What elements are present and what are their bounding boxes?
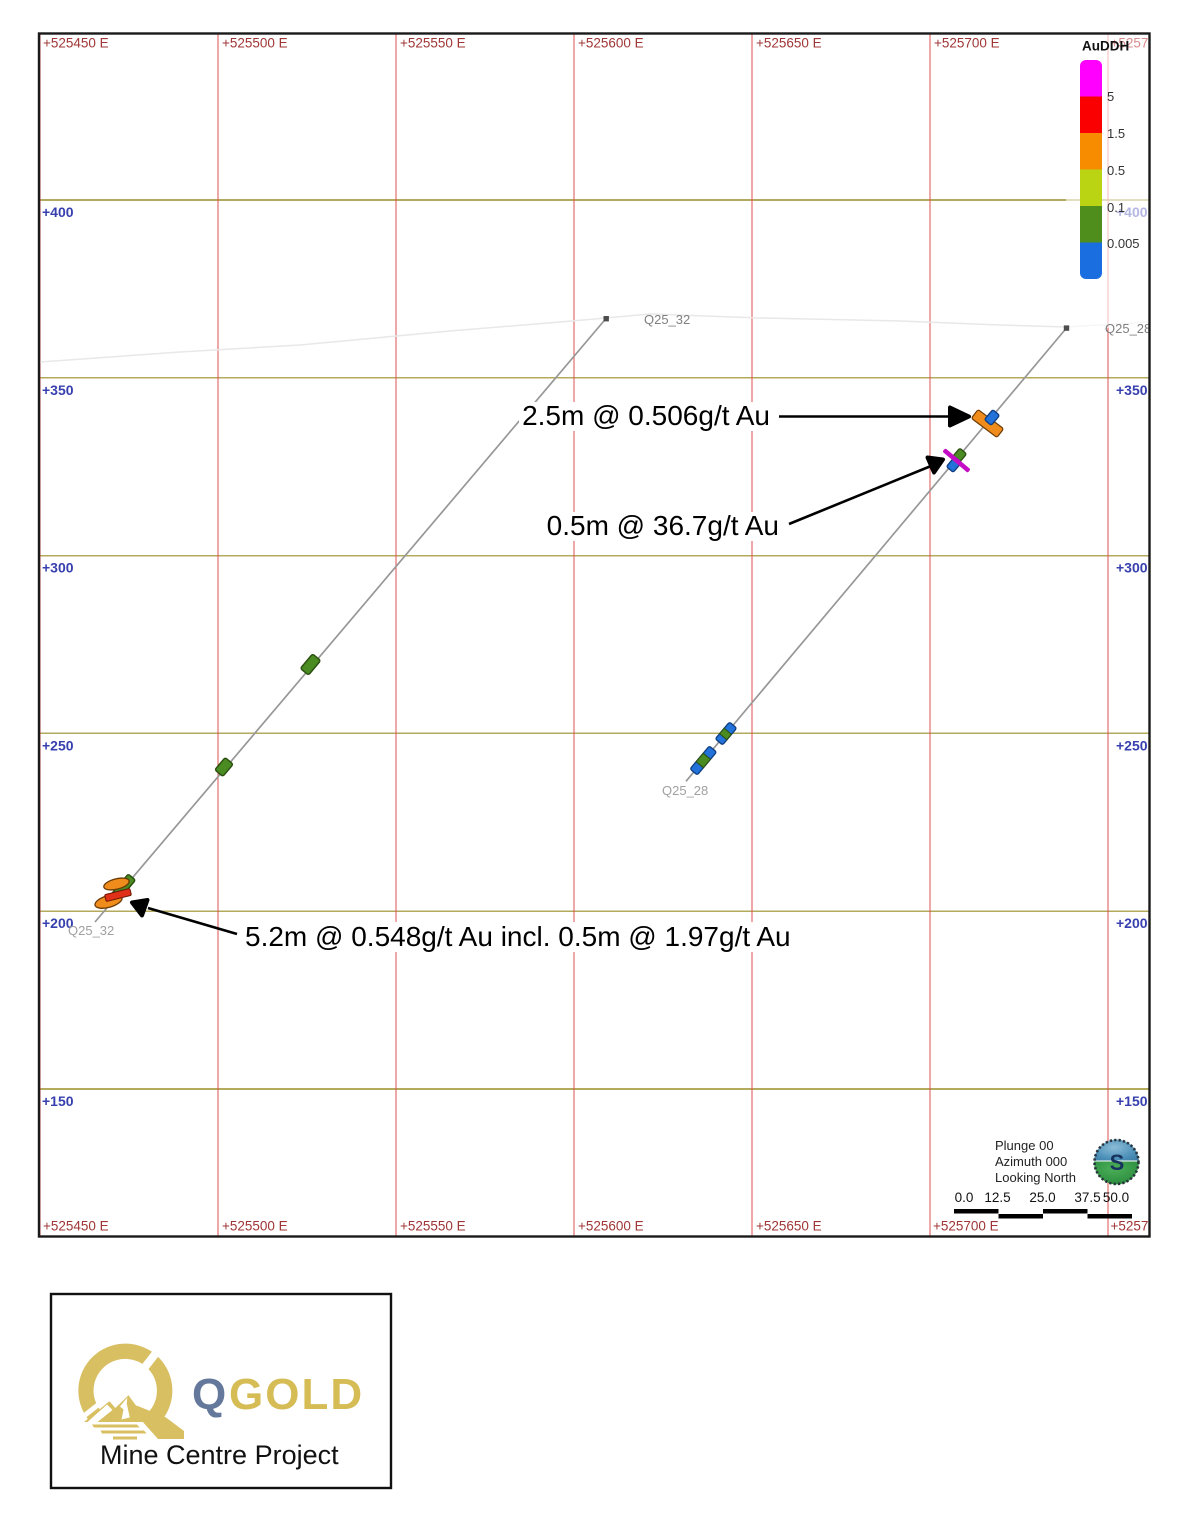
svg-text:Q25_28: Q25_28 xyxy=(662,783,708,798)
svg-text:+525700 E: +525700 E xyxy=(934,36,1000,51)
svg-text:+525650 E: +525650 E xyxy=(756,36,822,51)
svg-text:+300: +300 xyxy=(42,560,74,576)
svg-text:Mine Centre Project: Mine Centre Project xyxy=(100,1440,339,1470)
svg-text:Q: Q xyxy=(192,1370,228,1419)
svg-text:5.2m @ 0.548g/t Au incl. 0.5m: 5.2m @ 0.548g/t Au incl. 0.5m @ 1.97g/t … xyxy=(245,921,791,952)
svg-text:+525500 E: +525500 E xyxy=(222,1219,288,1234)
svg-text:1.5: 1.5 xyxy=(1107,126,1125,141)
svg-text:+150: +150 xyxy=(42,1093,74,1109)
svg-text:5: 5 xyxy=(1107,89,1114,104)
svg-text:0.1: 0.1 xyxy=(1107,200,1125,215)
svg-text:0.005: 0.005 xyxy=(1107,236,1140,251)
svg-text:0.5m @ 36.7g/t Au: 0.5m @ 36.7g/t Au xyxy=(547,510,779,541)
svg-text:Plunge 00: Plunge 00 xyxy=(995,1138,1054,1153)
svg-text:Q25_32: Q25_32 xyxy=(68,923,114,938)
svg-text:GOLD: GOLD xyxy=(229,1370,364,1419)
svg-text:12.5: 12.5 xyxy=(984,1190,1010,1205)
svg-text:+525550 E: +525550 E xyxy=(400,1219,466,1234)
svg-text:AuDDH: AuDDH xyxy=(1082,39,1129,54)
svg-text:25.0: 25.0 xyxy=(1029,1190,1055,1205)
svg-text:+200: +200 xyxy=(1116,915,1148,931)
svg-text:+525600 E: +525600 E xyxy=(578,1219,644,1234)
svg-text:+525450 E: +525450 E xyxy=(43,1219,109,1234)
svg-text:+525650 E: +525650 E xyxy=(756,1219,822,1234)
svg-text:50.0: 50.0 xyxy=(1103,1190,1129,1205)
svg-text:0.5: 0.5 xyxy=(1107,163,1125,178)
svg-text:+250: +250 xyxy=(42,737,74,753)
svg-text:2.5m @ 0.506g/t Au: 2.5m @ 0.506g/t Au xyxy=(522,400,770,431)
svg-text:37.5: 37.5 xyxy=(1074,1190,1100,1205)
svg-text:+250: +250 xyxy=(1116,737,1148,753)
svg-text:+400: +400 xyxy=(42,204,74,220)
svg-text:Q25_32: Q25_32 xyxy=(644,312,690,327)
svg-text:+525700 E: +525700 E xyxy=(933,1219,999,1234)
svg-text:S: S xyxy=(1110,1150,1125,1175)
svg-text:+300: +300 xyxy=(1116,560,1148,576)
svg-text:+525450 E: +525450 E xyxy=(43,36,109,51)
svg-text:+350: +350 xyxy=(42,382,74,398)
svg-text:0.0: 0.0 xyxy=(955,1190,974,1205)
svg-text:+5257: +5257 xyxy=(1111,1219,1149,1234)
svg-text:+350: +350 xyxy=(1116,382,1148,398)
svg-text:+525500 E: +525500 E xyxy=(222,36,288,51)
svg-text:+150: +150 xyxy=(1116,1093,1148,1109)
svg-text:Azimuth 000: Azimuth 000 xyxy=(995,1154,1067,1169)
svg-text:Q25_28: Q25_28 xyxy=(1105,321,1151,336)
svg-text:+525550 E: +525550 E xyxy=(400,36,466,51)
svg-text:Looking North: Looking North xyxy=(995,1170,1076,1185)
svg-text:+525600 E: +525600 E xyxy=(578,36,644,51)
